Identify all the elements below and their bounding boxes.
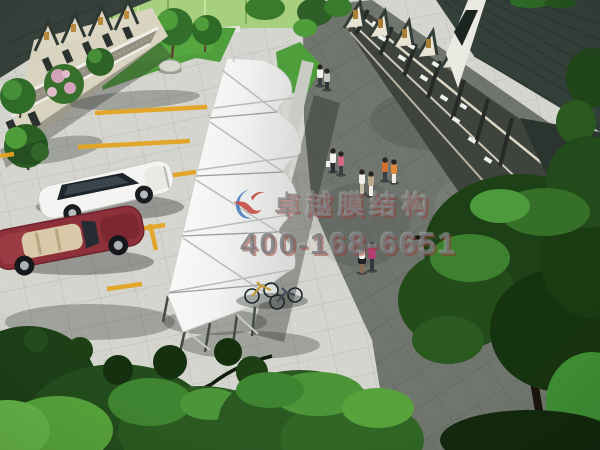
vignette [0, 0, 600, 450]
rendering-image: 卓越膜结构 400-168-6651 [0, 0, 600, 450]
scene-canvas [0, 0, 600, 450]
